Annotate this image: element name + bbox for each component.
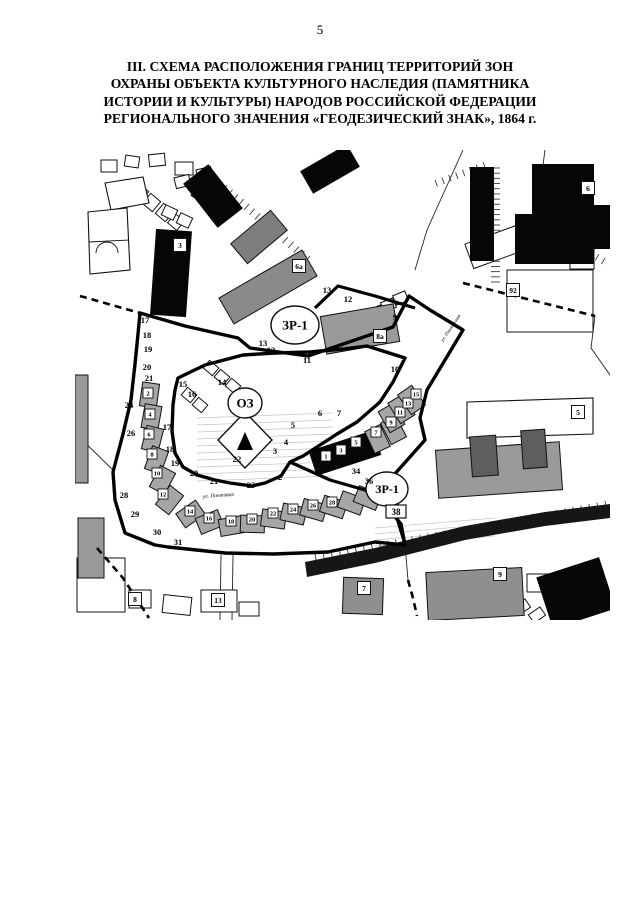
vertex-number: 6 — [318, 408, 322, 418]
building-black — [300, 150, 360, 194]
slope-hachure — [462, 170, 464, 177]
zone-label: ОЗ — [237, 396, 254, 411]
vertex-number: 26 — [127, 428, 136, 438]
slope-hachure — [435, 180, 437, 187]
house-number: 11 — [397, 410, 403, 417]
slope-hachure — [442, 177, 444, 184]
building-number: 8 — [133, 595, 137, 604]
street-name: ул. Почтовая — [202, 492, 235, 500]
house-number: 12 — [160, 492, 167, 499]
building-gray — [78, 518, 104, 578]
vertex-number: 15 — [179, 379, 188, 389]
vertex-number: 11 — [303, 355, 311, 365]
road-line — [415, 150, 463, 270]
vertex-number: 9 — [393, 312, 397, 322]
zone-label: ЗР-1 — [375, 482, 399, 496]
vertex-number: 2 — [278, 472, 282, 482]
vertex-number: 21 — [145, 373, 154, 383]
dashed-boundary — [408, 580, 417, 616]
house-number: 14 — [187, 509, 194, 516]
ground-striation — [197, 427, 333, 432]
house-number: 18 — [228, 519, 235, 526]
document-page: 5 III. СХЕМА РАСПОЛОЖЕНИЯ ГРАНИЦ ТЕРРИТО… — [0, 0, 640, 905]
ground-striation — [197, 413, 333, 418]
road-line — [591, 316, 610, 382]
building-outline — [162, 595, 192, 616]
road-band — [305, 504, 610, 577]
vertex-number: 13 — [323, 285, 332, 295]
title-line-2: ОХРАНЫ ОБЪЕКТА КУЛЬТУРНОГО НАСЛЕДИЯ (ПАМ… — [48, 75, 593, 92]
house-number: 10 — [154, 471, 161, 478]
title-line-1: III. СХЕМА РАСПОЛОЖЕНИЯ ГРАНИЦ ТЕРРИТОРИ… — [48, 58, 593, 75]
ground-striation — [197, 420, 333, 425]
building-number: 9 — [498, 570, 502, 579]
map-figure: ЗР-1ЗР-1ОЗ381718192021242628293031131211… — [75, 150, 610, 620]
slope-hachure — [255, 213, 260, 219]
slope-hachure — [249, 209, 254, 215]
vertex-number: 29 — [131, 509, 140, 519]
title-line-3: ИСТОРИИ И КУЛЬТУРЫ) НАРОДОВ РОССИЙСКОЙ Ф… — [48, 93, 593, 110]
vertex-number: 18 — [166, 444, 175, 454]
house-number: 1 — [324, 454, 327, 461]
building-number: 6 — [586, 184, 590, 193]
house-number: 26 — [310, 503, 317, 510]
vertex-number: 5 — [291, 420, 295, 430]
house-number: 24 — [290, 507, 297, 514]
vertex-number: 17 — [163, 422, 172, 432]
vertex-number: 14 — [218, 377, 227, 387]
house-number: 28 — [329, 500, 336, 507]
vertex-number: 3 — [273, 446, 277, 456]
building-number: 5 — [576, 408, 580, 417]
vertex-number: 18 — [143, 330, 152, 340]
slope-hachure — [244, 204, 249, 210]
vertex-number: 22 — [233, 454, 242, 464]
vertex-number: 23 — [247, 480, 256, 490]
building-black — [515, 214, 594, 264]
building-black — [594, 205, 610, 249]
building-number: 13 — [214, 596, 222, 605]
vertex-number: 19 — [144, 344, 153, 354]
building-outline — [105, 177, 149, 210]
building-outline — [124, 155, 139, 168]
building-outline — [175, 162, 193, 175]
building-outline — [148, 153, 165, 167]
point-38-label: 38 — [392, 507, 402, 517]
vertex-number: 24 — [125, 400, 134, 410]
slope-hachure — [456, 172, 458, 179]
slope-hachure — [283, 237, 288, 243]
slope-hachure — [601, 258, 605, 264]
building-black — [470, 167, 494, 261]
building-outline — [507, 270, 593, 332]
slope-hachure — [595, 254, 599, 260]
house-number: 15 — [413, 392, 420, 399]
zone-label: ЗР-1 — [282, 318, 308, 333]
page-number: 5 — [0, 22, 640, 38]
building-number: 6а — [295, 262, 303, 271]
page-title: III. СХЕМА РАСПОЛОЖЕНИЯ ГРАНИЦ ТЕРРИТОРИ… — [48, 58, 593, 128]
building-gray — [426, 568, 524, 620]
building-gray — [231, 210, 288, 263]
vertex-number: 19 — [171, 458, 180, 468]
vertex-number: 16 — [188, 389, 197, 399]
dashed-boundary — [80, 296, 140, 313]
vertex-number: 34 — [352, 466, 361, 476]
protection-zones-map: ЗР-1ЗР-1ОЗ381718192021242628293031131211… — [75, 150, 610, 620]
building-outline — [239, 602, 259, 616]
building-black — [536, 557, 610, 620]
vertex-number: 4 — [284, 437, 289, 447]
slope-hachure — [288, 242, 293, 248]
title-line-4: РЕГИОНАЛЬНОГО ЗНАЧЕНИЯ «ГЕОДЕЗИЧЕСКИЙ ЗН… — [48, 110, 593, 127]
vertex-number: 10 — [391, 364, 400, 374]
building-outline — [192, 397, 208, 412]
vertex-number: 36 — [365, 476, 374, 486]
house-number: 20 — [249, 517, 256, 524]
vertex-number: 20 — [143, 362, 152, 372]
building-number: 92 — [509, 286, 517, 295]
building-gray — [75, 375, 88, 483]
building-gray — [521, 429, 548, 469]
house-number: 16 — [206, 516, 213, 523]
vertex-number: 31 — [174, 537, 183, 547]
building-number: 8а — [376, 332, 384, 341]
vertex-number: 21 — [210, 476, 219, 486]
vertex-number: 12 — [267, 345, 276, 355]
house-number: 2 — [146, 391, 149, 398]
vertex-number: 17 — [141, 315, 150, 325]
house-number: 22 — [270, 511, 277, 518]
building-number: 3 — [178, 241, 182, 250]
vertex-number: 28 — [120, 490, 129, 500]
vertex-number: 7 — [337, 408, 342, 418]
building-outline — [101, 160, 117, 172]
building-gray — [470, 435, 499, 477]
vertex-number: 20 — [190, 468, 199, 478]
building-number: 7 — [362, 584, 366, 593]
vertex-number: 30 — [153, 527, 162, 537]
vertex-number: 12 — [344, 294, 353, 304]
building-outline — [528, 607, 545, 620]
house-number: 13 — [405, 401, 412, 408]
